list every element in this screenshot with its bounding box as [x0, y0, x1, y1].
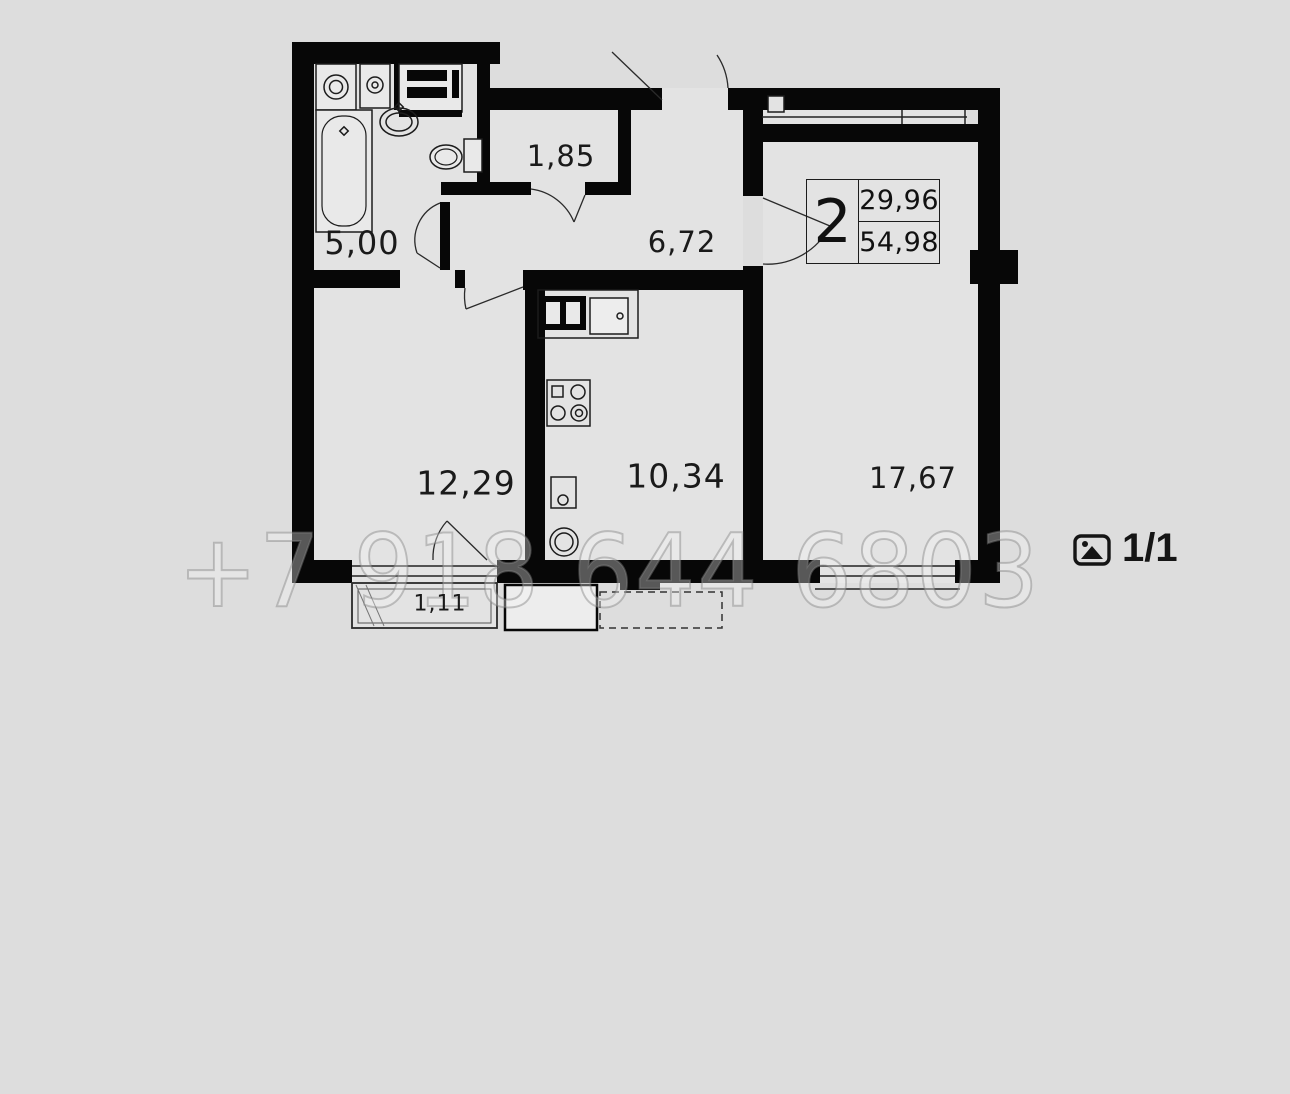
unit-area-total: 54,98 — [859, 222, 939, 263]
room-label-wardrobe: 1,85 — [527, 139, 596, 173]
room-label-bathroom: 5,00 — [324, 224, 399, 262]
photo-counter-text: 1/1 — [1122, 526, 1178, 571]
unit-area-living: 29,96 — [859, 180, 939, 222]
listing-details: Площадь, м2 54 Цена, ₽ 6 111 027 Цена, м… — [0, 660, 1290, 1094]
listing-card: +7 918 644 6803 5,00 1,85 6,72 12,29 10,… — [0, 0, 1290, 1094]
room-label-room: 12,29 — [416, 464, 515, 503]
room-label-balcony: 1,11 — [414, 592, 467, 617]
room-label-hallway: 6,72 — [648, 225, 717, 259]
room-label-kitchen: 10,34 — [626, 457, 725, 496]
unit-badge: 2 29,96 54,98 — [806, 179, 940, 264]
floorplan-image[interactable]: +7 918 644 6803 5,00 1,85 6,72 12,29 10,… — [0, 0, 1290, 660]
photo-icon — [1072, 529, 1112, 569]
photo-counter[interactable]: 1/1 — [1072, 526, 1178, 571]
room-label-living-room: 17,67 — [869, 461, 957, 495]
unit-rooms-count: 2 — [807, 180, 859, 263]
